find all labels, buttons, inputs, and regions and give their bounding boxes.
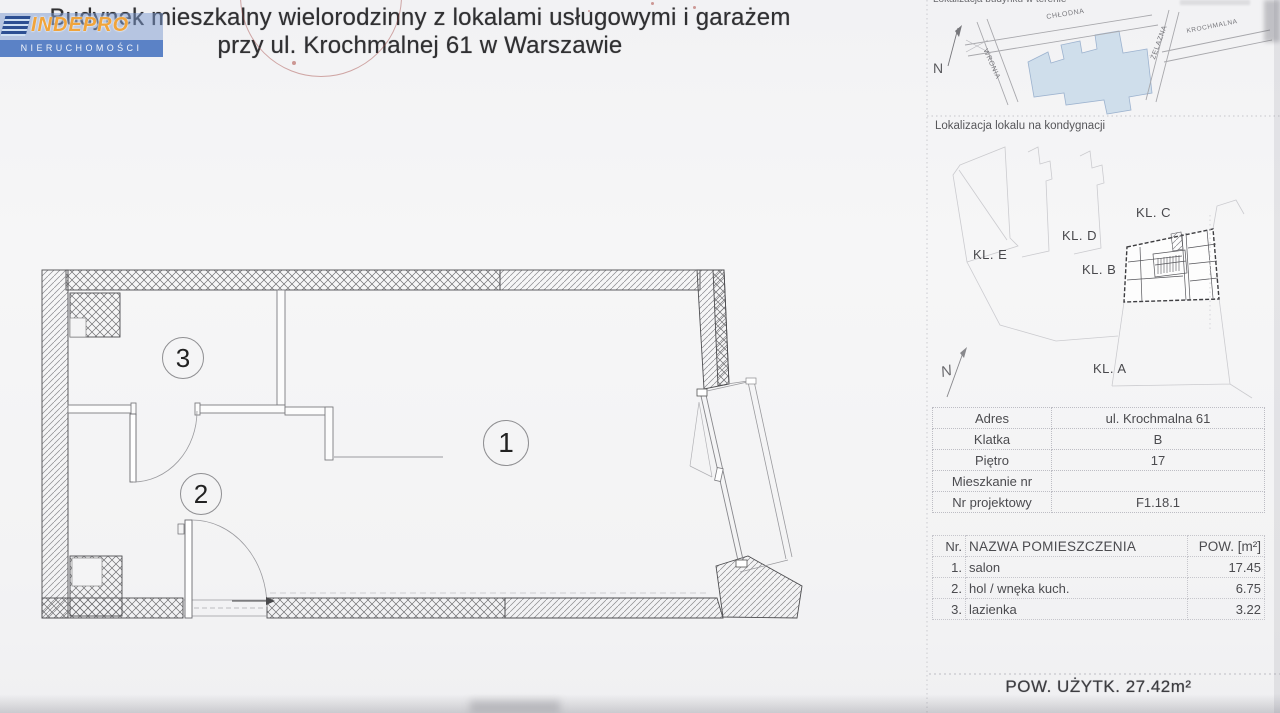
logo-top: INDEPRO	[0, 13, 163, 40]
unit-info-table: Adres ul. Krochmalna 61 Klatka B Piętro …	[932, 407, 1265, 513]
rooms-header-area: POW. [m²]	[1188, 536, 1265, 557]
room-marker-salon: 1	[483, 420, 529, 466]
north-label-site: N	[933, 60, 943, 76]
info-value: 17	[1052, 450, 1265, 471]
room-name: lazienka	[966, 599, 1188, 620]
table-row: Adres ul. Krochmalna 61	[933, 408, 1265, 429]
info-value	[1052, 471, 1265, 492]
room-nr: 2.	[933, 578, 966, 599]
staircase-label-b: KL. B	[1082, 262, 1116, 277]
room-area: 6.75	[1188, 578, 1265, 599]
table-row: Piętro 17	[933, 450, 1265, 471]
floor-plan-drawing	[42, 270, 802, 618]
logo-emblem-icon	[1, 16, 31, 36]
table-row: 3. lazienka 3.22	[933, 599, 1265, 620]
logo-subtitle: NIERUCHOMOŚCI	[0, 40, 163, 57]
room-name: salon	[966, 557, 1188, 578]
room-nr: 3.	[933, 599, 966, 620]
floor-location-label: Lokalizacja lokalu na kondygnacji	[935, 120, 1105, 132]
stamp-speck	[693, 6, 696, 9]
room-nr: 1.	[933, 557, 966, 578]
rooms-table: Nr. NAZWA POMIESZCZENIA POW. [m²] 1. sal…	[932, 535, 1265, 620]
room-marker-lazienka: 3	[162, 337, 204, 379]
info-label: Piętro	[933, 450, 1052, 471]
table-row: 1. salon 17.45	[933, 557, 1265, 578]
rooms-header-name: NAZWA POMIESZCZENIA	[966, 536, 1188, 557]
staircase-label-c: KL. C	[1136, 205, 1171, 220]
info-value: ul. Krochmalna 61	[1052, 408, 1265, 429]
stamp-speck	[651, 2, 654, 5]
table-row: 2. hol / wnęka kuch. 6.75	[933, 578, 1265, 599]
table-row: Klatka B	[933, 429, 1265, 450]
staircase-label-a: KL. A	[1093, 361, 1127, 376]
info-value: B	[1052, 429, 1265, 450]
table-row: Nr projektowy F1.18.1	[933, 492, 1265, 513]
info-label: Klatka	[933, 429, 1052, 450]
room-name: hol / wnęka kuch.	[966, 578, 1188, 599]
room-marker-hol: 2	[180, 473, 222, 515]
site-map-label: Lokalizacja budynku w terenie	[933, 0, 1066, 5]
logo-name: INDEPRO	[31, 14, 129, 37]
table-row: Mieszkanie nr	[933, 471, 1265, 492]
info-value: F1.18.1	[1052, 492, 1265, 513]
total-area-label: POW. UŻYTK. 27.42m²	[932, 677, 1265, 697]
rooms-header-nr: Nr.	[933, 536, 966, 557]
info-label: Nr projektowy	[933, 492, 1052, 513]
agency-logo: INDEPRO NIERUCHOMOŚCI	[0, 13, 163, 57]
info-label: Mieszkanie nr	[933, 471, 1052, 492]
table-header-row: Nr. NAZWA POMIESZCZENIA POW. [m²]	[933, 536, 1265, 557]
room-area: 17.45	[1188, 557, 1265, 578]
staircase-label-e: KL. E	[973, 247, 1007, 262]
room-area: 3.22	[1188, 599, 1265, 620]
stamp-speck	[292, 61, 296, 65]
staircase-label-d: KL. D	[1062, 228, 1097, 243]
stamp-speck	[588, 10, 590, 12]
info-label: Adres	[933, 408, 1052, 429]
